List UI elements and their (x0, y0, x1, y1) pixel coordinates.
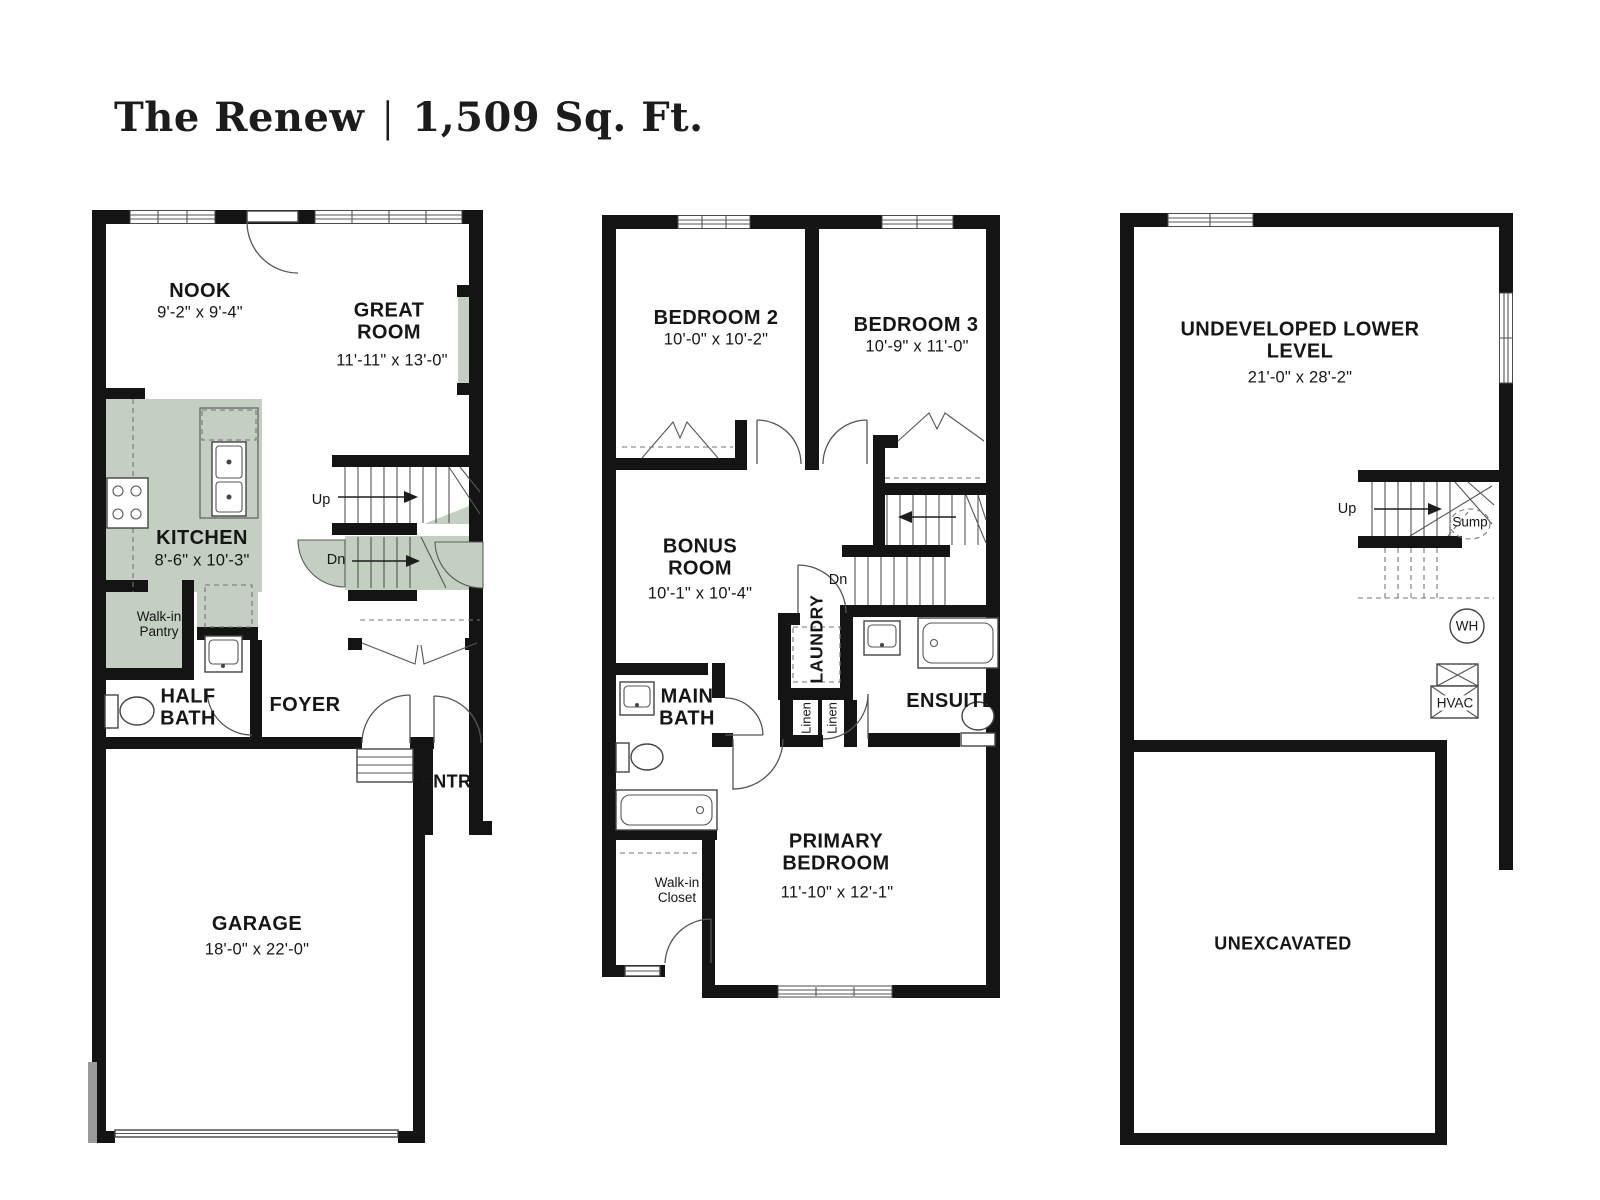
undeveloped-dim: 21'-0" x 28'-2" (1248, 369, 1352, 388)
page-title: The Renew|1,509 Sq. Ft. (114, 96, 704, 140)
main-floor-plan (85, 205, 500, 1150)
water-heater-label: WH (1456, 618, 1479, 633)
foyer-closet (360, 620, 480, 664)
floor-plan-page: The Renew|1,509 Sq. Ft. (0, 0, 1600, 1200)
stove-icon (107, 478, 148, 528)
foyer-label: FOYER (270, 694, 341, 716)
main-floor-walls (92, 210, 492, 1143)
nook-label: NOOK (169, 280, 231, 302)
plan-name: The Renew (114, 94, 364, 141)
main-up-label: Up (312, 492, 331, 508)
nook-dim: 9'-2" x 9'-4" (157, 304, 243, 323)
walk-in-closet-door (620, 853, 711, 963)
title-separator: | (383, 96, 394, 140)
garage-entry-door (362, 695, 410, 743)
upper-dn-label: Dn (829, 572, 848, 588)
nook-door (247, 211, 298, 273)
bedroom2-door (757, 420, 801, 464)
bedroom3-closet (885, 413, 984, 478)
bedroom3-dim: 10'-9" x 11'-0" (865, 338, 968, 357)
lower-up-label: Up (1338, 501, 1357, 517)
walk-in-closet-label: Walk-in Closet (641, 875, 713, 905)
kitchen-label: KITCHEN (156, 527, 248, 549)
hvac-label: HVAC (1435, 695, 1476, 710)
bedroom3-label: BEDROOM 3 (854, 314, 979, 336)
linen-right-label: Linen (825, 702, 840, 734)
ensuite-label: ENSUITE (906, 690, 995, 712)
bedroom2-closet (622, 422, 733, 458)
ensuite-fixtures (864, 618, 998, 746)
sump-label: Sump (1452, 514, 1487, 529)
bedroom2-label: BEDROOM 2 (654, 307, 779, 329)
main-dn-label: Dn (327, 552, 346, 568)
half-bath-sink-icon (205, 636, 242, 672)
linen-left-label: Linen (799, 702, 814, 734)
bonus-room-dim: 10'-1" x 10'-4" (648, 585, 752, 604)
bedroom2-dim: 10'-0" x 10'-2" (664, 331, 768, 350)
primary-bedroom-dim: 11'-10" x 12'-1" (781, 884, 894, 903)
kitchen-dim: 8'-6" x 10'-3" (154, 552, 249, 571)
primary-bedroom-label: PRIMARY BEDROOM (750, 831, 922, 876)
laundry-label: LAUNDRY (807, 594, 828, 683)
unexcavated-label: UNEXCAVATED (1214, 934, 1351, 955)
great-room-label: GREAT ROOM (333, 300, 445, 345)
main-bath-label: MAIN BATH (643, 686, 731, 731)
plan-area: 1,509 Sq. Ft. (412, 94, 703, 141)
pantry-label: Walk-in Pantry (128, 609, 190, 639)
primary-bedroom-door (733, 739, 783, 790)
entry-steps-icon (357, 749, 413, 782)
garage-door-icon (115, 1130, 398, 1137)
great-room-dim: 11'-11" x 13'-0" (336, 352, 447, 371)
bonus-room-label: BONUS ROOM (644, 536, 756, 581)
bedroom3-door (823, 420, 867, 464)
party-wall (88, 1062, 97, 1143)
garage-label: GARAGE (212, 913, 302, 935)
half-bath-label: HALF BATH (141, 686, 235, 731)
entry-label: ENTRY (421, 772, 483, 793)
undeveloped-label: UNDEVELOPED LOWER LEVEL (1178, 319, 1422, 364)
garage-dim: 18'-0" x 22'-0" (205, 941, 309, 960)
